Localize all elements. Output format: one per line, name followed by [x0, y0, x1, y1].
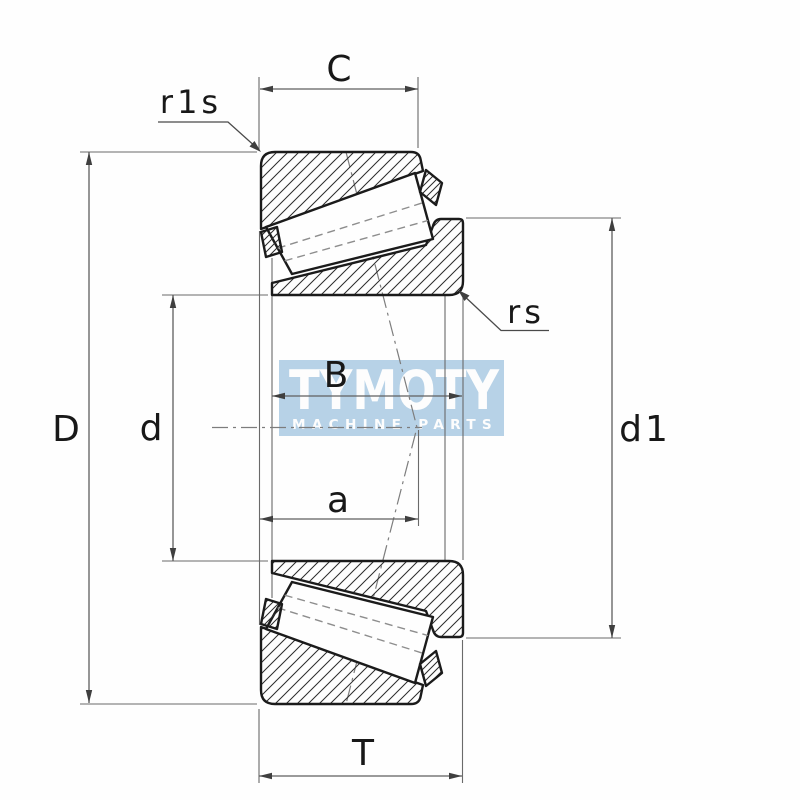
- cage-upper-left-section: [261, 227, 282, 257]
- watermark-subtitle: MACHINE PARTS: [292, 418, 498, 433]
- label-rib-diameter-d1: d1: [619, 409, 671, 450]
- label-cone-corner-radius-rs: rs: [507, 293, 545, 331]
- label-cone-width-B: B: [324, 355, 349, 396]
- bearing-drawing-page: TYMOTY MACHINE PARTS: [0, 0, 800, 800]
- label-load-center-a: a: [327, 480, 349, 521]
- cage-lower-left-section: [261, 599, 282, 629]
- label-total-width-T: T: [351, 733, 375, 774]
- label-cup-corner-radius-r1s: r1s: [160, 83, 222, 121]
- bearing-cross-section-drawing: TYMOTY MACHINE PARTS: [0, 0, 800, 800]
- label-outer-diameter-D: D: [52, 409, 80, 450]
- watermark-title: TYMOTY: [289, 359, 500, 422]
- label-cup-width-C: C: [326, 49, 351, 90]
- watermark: TYMOTY MACHINE PARTS: [279, 359, 504, 436]
- label-bore-diameter-d: d: [140, 408, 163, 449]
